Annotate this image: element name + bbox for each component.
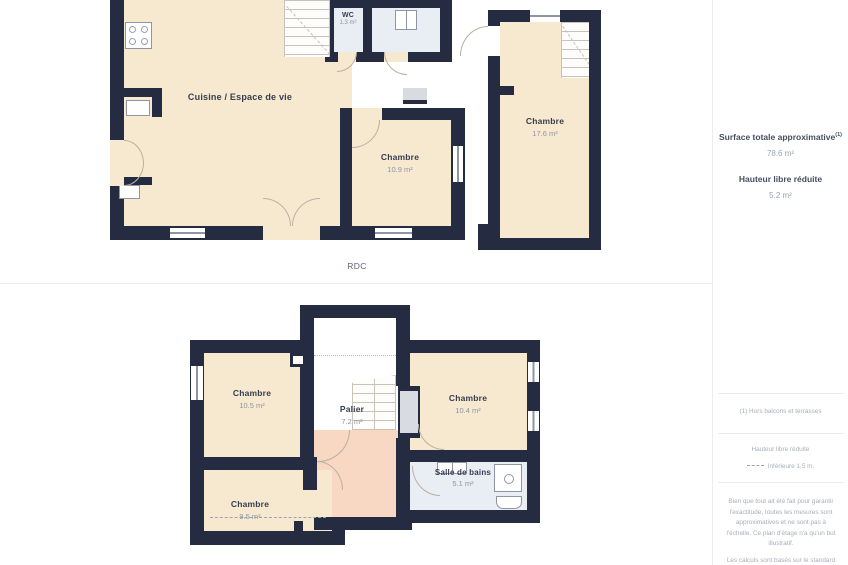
fixture-divider: [406, 11, 407, 29]
surface-total-value: 78.6 m²: [713, 149, 848, 158]
wall: [314, 517, 412, 530]
chimney-box: [294, 521, 303, 533]
window: [528, 362, 539, 382]
surface-total-title: Surface totale approximative(1): [713, 132, 848, 142]
wall: [303, 457, 317, 490]
door-opening: [110, 140, 124, 186]
room-label: Chambre 10.5 m²: [233, 388, 271, 410]
reduced-height-title: Hauteur libre réduite: [713, 174, 848, 184]
window: [191, 366, 203, 400]
wall: [408, 52, 452, 62]
legend-item-text: Inférieure 1,5 m.: [768, 463, 815, 470]
room-name: Salle de bains: [435, 468, 491, 477]
room-name: Palier: [340, 404, 364, 414]
footnote-text: (1) Hors balcons et terrasses: [713, 408, 848, 415]
stairs-center-line: [374, 375, 375, 430]
burner: [129, 38, 136, 45]
room-label: Cuisine / Espace de vie: [188, 92, 292, 102]
door-opening: [263, 226, 320, 240]
wall: [190, 340, 314, 353]
room-label: Chambre 9.5 m²: [231, 499, 269, 521]
room-label: WC 1.3 m²: [339, 12, 356, 26]
room-area: 10.9 m²: [381, 165, 419, 174]
closet: [398, 386, 420, 438]
room-area: 5.1 m²: [435, 479, 491, 488]
wall: [300, 305, 314, 457]
room-name: Chambre: [233, 388, 271, 398]
room-area: 7.2 m²: [340, 417, 364, 426]
window: [453, 146, 463, 182]
footer-text: Les calculs sont basés sur le standard: [725, 556, 837, 565]
window: [375, 228, 412, 238]
room-label: Palier 7.2 m²: [340, 404, 364, 426]
floor-label-rdc: RDC: [347, 261, 367, 271]
floorplan-page: Cuisine / Espace de vie WC 1.3 m² Chambr…: [0, 0, 848, 565]
shaft-niche: [290, 353, 306, 367]
sidebar-divider: [718, 433, 844, 434]
room-name: Chambre: [526, 116, 564, 126]
reduced-height-line: [314, 355, 396, 356]
wall: [110, 0, 124, 240]
sidebar-divider: [718, 482, 844, 483]
wall: [300, 305, 410, 318]
floor-divider: [0, 283, 712, 284]
wall: [488, 238, 601, 250]
disclaimer-text: Bien que tout ait été fait pour garantir…: [725, 497, 837, 550]
wall: [410, 450, 540, 462]
wall: [152, 97, 162, 117]
appliance-icon: [126, 100, 150, 116]
burner: [141, 38, 148, 45]
wall: [325, 0, 452, 8]
reduced-height-value: 5.2 m²: [713, 191, 848, 200]
room-label: Chambre 17.6 m²: [526, 116, 564, 138]
room-label: Salle de bains 5.1 m²: [435, 468, 491, 488]
summary-sidebar: Surface totale approximative(1) 78.6 m² …: [712, 0, 848, 565]
closet: [403, 88, 427, 104]
wall: [118, 88, 162, 97]
room-name: WC: [339, 12, 356, 19]
wall: [396, 340, 540, 353]
room-label: Chambre 10.9 m²: [381, 152, 419, 174]
room-name: Chambre: [449, 393, 487, 403]
door-opening: [352, 108, 382, 120]
room-area: 17.6 m²: [526, 129, 564, 138]
stairs-cut-line: [286, 6, 330, 57]
stairs-icon: [561, 22, 589, 78]
surface-title-footnote-marker: (1): [835, 132, 842, 138]
wall: [372, 52, 384, 62]
wall: [396, 438, 410, 510]
wall: [589, 10, 601, 250]
room-area: 1.3 m²: [339, 20, 356, 26]
room-name: Chambre: [231, 499, 269, 509]
door-arc: [460, 26, 488, 56]
window: [530, 10, 560, 22]
wall: [340, 108, 352, 226]
toilet-icon: [496, 496, 522, 509]
window: [170, 228, 205, 238]
shower-drain: [504, 474, 514, 484]
stairs-icon: [284, 0, 330, 57]
shower-icon: [494, 464, 522, 492]
stove-icon: [125, 22, 152, 49]
room-area: 9.5 m²: [231, 512, 269, 521]
dashed-line-swatch: [747, 465, 764, 467]
room-area: 10.5 m²: [233, 401, 271, 410]
burner: [141, 26, 148, 33]
door-opening: [488, 26, 500, 56]
washbasin-icon: [395, 10, 417, 30]
window: [528, 411, 539, 431]
wall: [500, 86, 514, 95]
room-area: 10.4 m²: [449, 406, 487, 415]
room-name: Cuisine / Espace de vie: [188, 92, 292, 102]
burner: [129, 26, 136, 33]
wall: [478, 224, 490, 250]
legend-title: Hauteur libre réduite: [713, 446, 848, 453]
legend-row: Inférieure 1,5 m.: [713, 463, 848, 470]
room-name: Chambre: [381, 152, 419, 162]
wall: [190, 531, 345, 545]
wall: [396, 353, 410, 386]
wall: [356, 52, 368, 62]
room-label: Chambre 10.4 m²: [449, 393, 487, 415]
surface-total-block: Surface totale approximative(1) 78.6 m² …: [713, 132, 848, 200]
stairs-cut-line: [562, 26, 589, 78]
sidebar-divider: [718, 393, 844, 394]
wall: [396, 510, 540, 523]
appliance-icon: [119, 185, 140, 199]
wall: [190, 457, 317, 470]
wall: [332, 517, 345, 545]
